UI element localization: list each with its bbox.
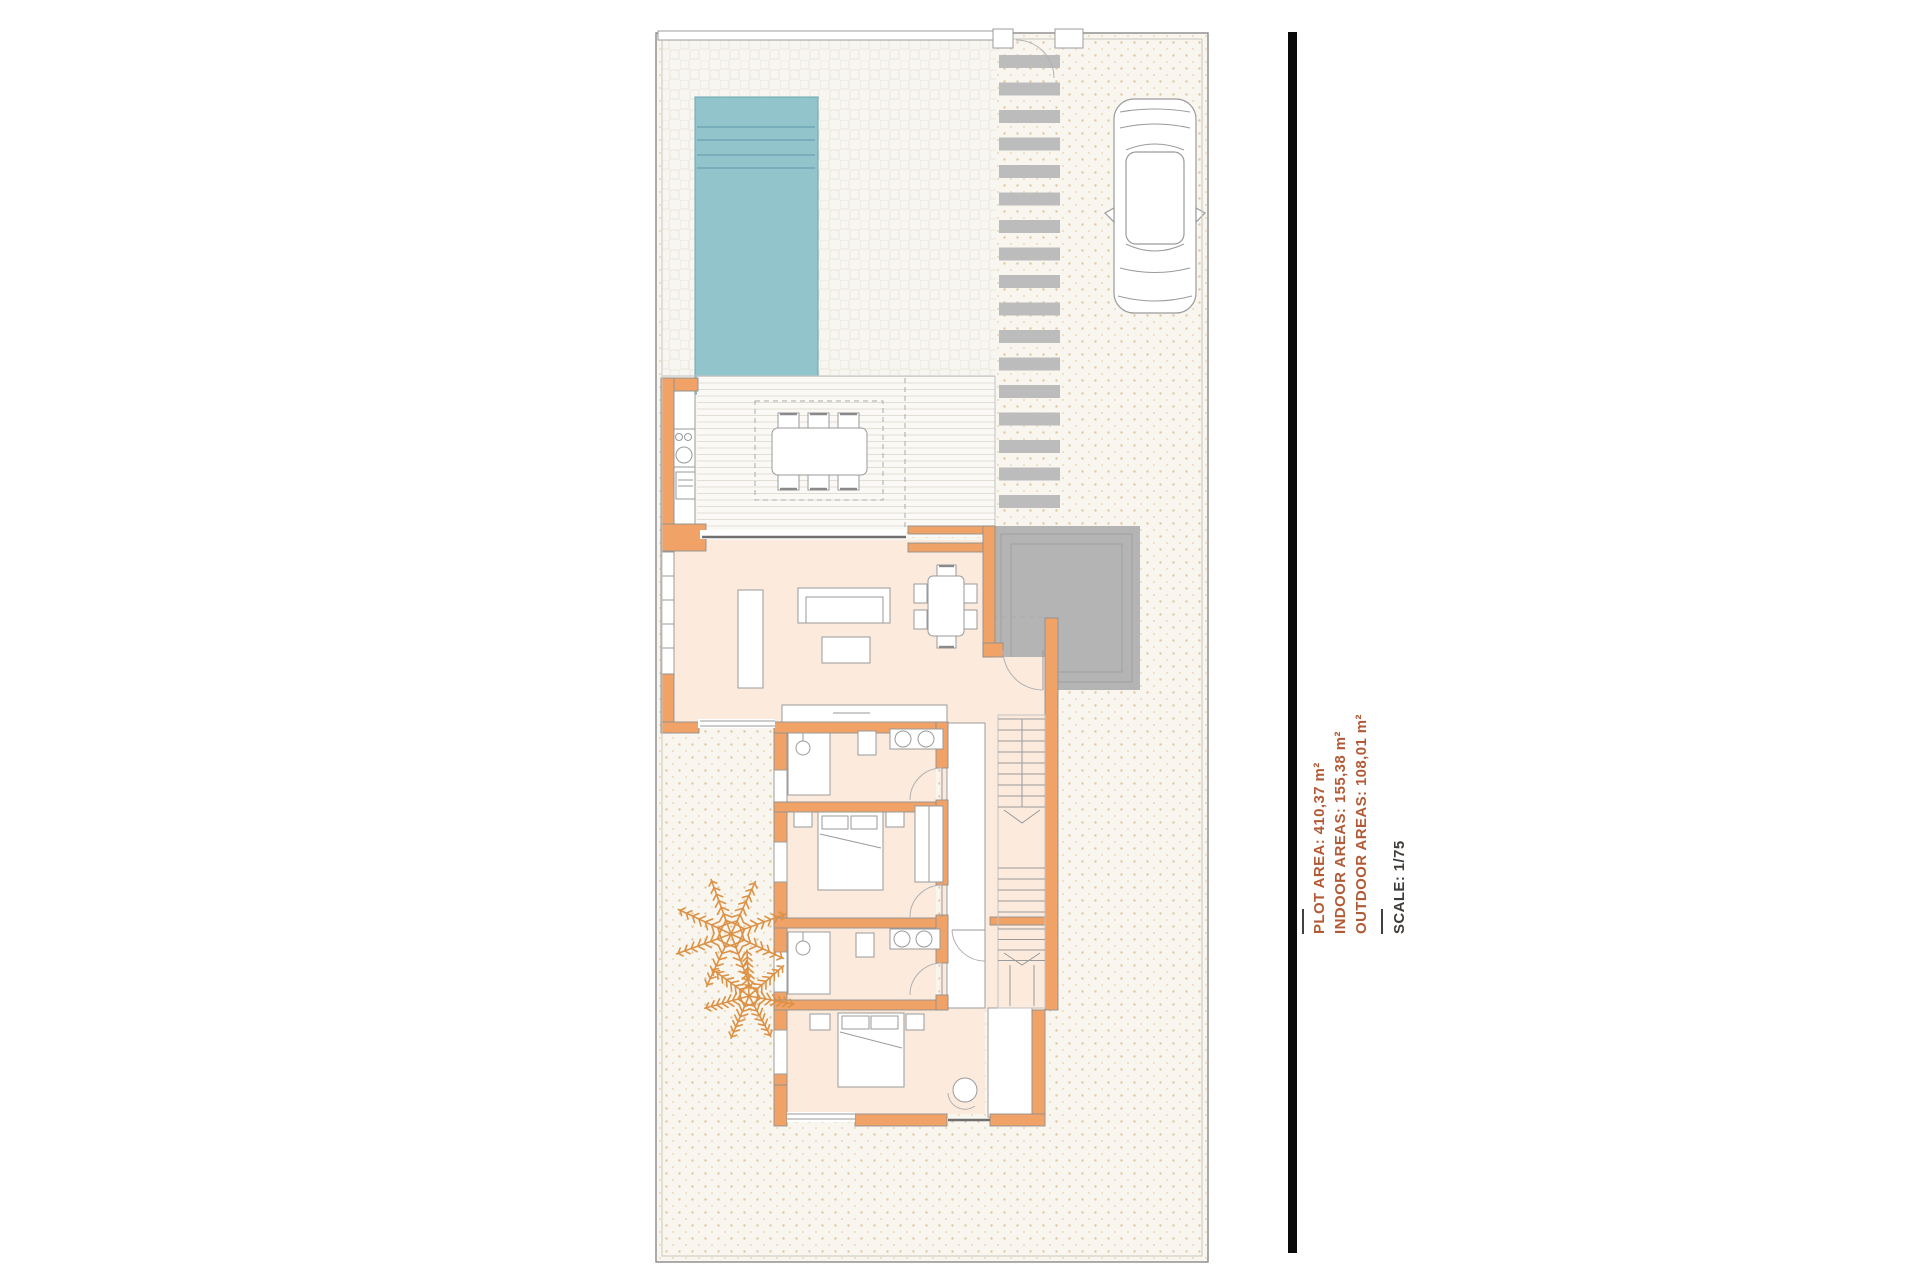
driveway-stripe: [999, 330, 1060, 343]
driveway-stripe: [999, 413, 1060, 426]
palm-frond-barb: [768, 973, 775, 974]
driveway-stripe: [999, 165, 1060, 178]
double-washbasin: [890, 929, 940, 949]
gate-pillar: [993, 29, 1013, 48]
driveway-stripe: [999, 385, 1060, 398]
bed: [818, 812, 883, 890]
driveway-stripe: [999, 138, 1060, 151]
separator-line: [1381, 909, 1383, 934]
floor-plan-page: PLOT AREA: 410,37 m² INDOOR AREAS: 155,3…: [0, 0, 1920, 1280]
tv-cabinet: [738, 590, 763, 688]
driveway-stripe: [999, 303, 1060, 316]
nightstand: [810, 1014, 830, 1030]
dining-chair: [964, 610, 977, 629]
plan-annotations: PLOT AREA: 410,37 m² INDOOR AREAS: 155,3…: [1302, 694, 1410, 934]
window: [774, 770, 787, 802]
palm-frond-barb: [717, 973, 718, 979]
window: [661, 552, 674, 674]
driveway-stripe: [999, 275, 1060, 288]
indoor-areas-label: INDOOR AREAS: 155,38 m²: [1330, 694, 1351, 934]
plot-area-label: PLOT AREA: 410,37 m²: [1309, 694, 1330, 934]
driveway-stripe: [999, 193, 1060, 206]
driveway-stripe: [999, 83, 1060, 96]
outdoor-kitchen: [673, 391, 695, 525]
palm-frond-barb: [758, 980, 766, 981]
scale-label: SCALE: 1/75: [1389, 694, 1410, 934]
palm-frond-barb: [722, 976, 723, 983]
gate-pillar: [1055, 29, 1083, 48]
palm-frond-barb: [763, 977, 770, 978]
dining-chair: [838, 475, 859, 490]
washbasin: [856, 933, 874, 957]
floor-plan-drawing: [0, 0, 1920, 1280]
driveway-stripe: [999, 468, 1060, 481]
media-console: [782, 705, 947, 722]
sofa: [798, 588, 890, 623]
driveway-stripe: [999, 220, 1060, 233]
nightstand: [794, 812, 812, 827]
dining-chair: [778, 475, 799, 490]
wardrobe: [915, 806, 943, 882]
coffee-table: [822, 637, 870, 663]
washbasin: [858, 731, 876, 755]
palm-frond-barb: [740, 989, 741, 998]
driveway-stripe: [999, 110, 1060, 123]
dining-chair: [914, 610, 927, 629]
outdoor-dining-table: [772, 413, 867, 490]
window: [774, 1030, 787, 1074]
palm-frond-barb: [772, 970, 778, 971]
title-block-bar: [1288, 32, 1297, 1253]
dining-chair: [914, 584, 927, 603]
window: [774, 842, 787, 882]
double-washbasin: [890, 729, 943, 749]
dining-chair: [778, 413, 799, 428]
driveway-stripe: [999, 248, 1060, 261]
dining-chair: [838, 413, 859, 428]
palm-frond-barb: [777, 966, 783, 967]
palm-frond-barb: [726, 979, 727, 986]
palm-frond-barb: [753, 984, 761, 985]
palm-frond-barb: [735, 986, 736, 994]
outdoor-areas-label: OUTDOOR AREAS: 108,01 m²: [1351, 694, 1372, 934]
shower: [788, 733, 830, 795]
entry-hall: [988, 1008, 1032, 1117]
swimming-pool: [695, 97, 818, 394]
palm-frond-barb: [749, 987, 758, 988]
separator-line: [1302, 909, 1304, 934]
dining-chair: [808, 413, 829, 428]
corridor: [947, 723, 985, 1008]
nightstand: [906, 1014, 924, 1030]
driveway-stripe: [999, 358, 1060, 371]
driveway-stripes: [999, 55, 1060, 508]
nightstand: [886, 812, 904, 827]
palm-frond-barb: [713, 970, 714, 976]
dining-chair: [964, 584, 977, 603]
shower: [788, 932, 830, 994]
car: [1105, 99, 1205, 313]
car-roof: [1126, 152, 1184, 244]
driveway-stripe: [999, 440, 1060, 453]
bed: [838, 1013, 904, 1087]
dining-chair: [808, 475, 829, 490]
terrace: [662, 376, 995, 537]
palm-frond-barb: [731, 983, 732, 991]
boundary-wall: [658, 31, 993, 40]
driveway-stripe: [999, 495, 1060, 508]
